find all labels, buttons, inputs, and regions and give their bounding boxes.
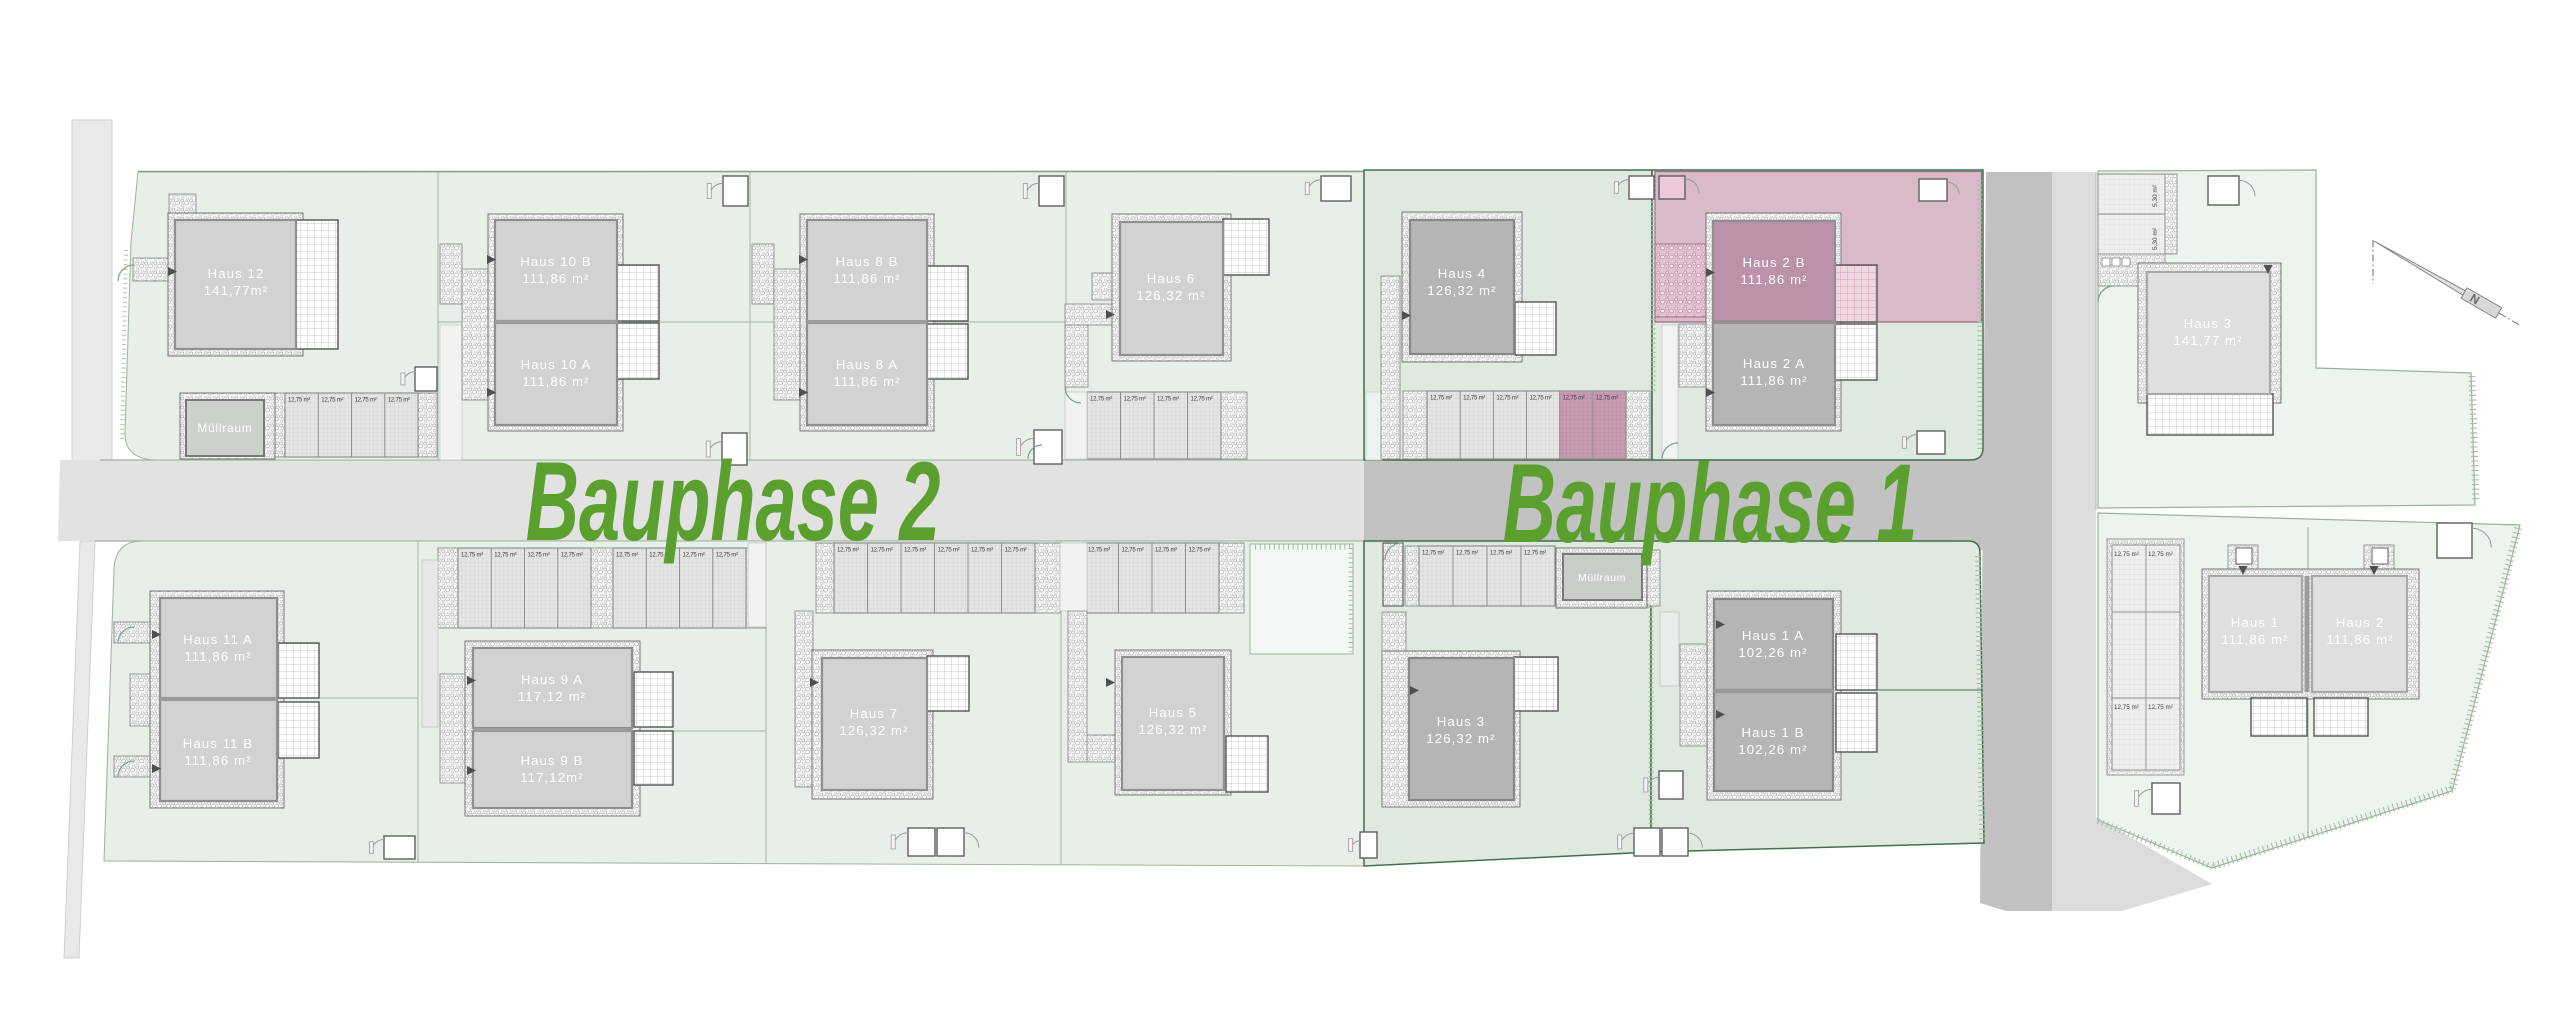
- svg-text:Bauphase 1: Bauphase 1: [1503, 442, 1918, 567]
- svg-text:Haus 2 B111,86 m²: Haus 2 B111,86 m²: [1740, 255, 1807, 287]
- svg-text:12,75 m²: 12,75 m²: [1496, 396, 1518, 402]
- svg-text:Haus 9 A117,12 m²: Haus 9 A117,12 m²: [518, 672, 586, 704]
- svg-text:12,75 m²: 12,75 m²: [938, 548, 960, 554]
- svg-text:Müllraum: Müllraum: [198, 421, 253, 435]
- svg-text:Haus 1 A102,26 m²: Haus 1 A102,26 m²: [1738, 628, 1807, 660]
- svg-text:12,75 m²: 12,75 m²: [1122, 548, 1144, 554]
- svg-text:Haus 8 B111,86 m²: Haus 8 B111,86 m²: [833, 254, 900, 286]
- svg-text:Haus 1111,86 m²: Haus 1111,86 m²: [2221, 615, 2288, 647]
- svg-text:12,75 m²: 12,75 m²: [1155, 548, 1177, 554]
- svg-text:Haus 2 A111,86 m²: Haus 2 A111,86 m²: [1740, 356, 1807, 388]
- svg-text:12,75 m²: 12,75 m²: [1191, 397, 1213, 403]
- svg-text:Müllraum: Müllraum: [1578, 572, 1626, 584]
- svg-text:12,75 m²: 12,75 m²: [2114, 704, 2139, 711]
- svg-text:Haus 12141,77m²: Haus 12141,77m²: [204, 266, 269, 298]
- svg-text:12,75 m²: 12,75 m²: [1530, 396, 1552, 402]
- svg-text:5,30 m²: 5,30 m²: [2152, 184, 2159, 207]
- svg-text:12,75 m²: 12,75 m²: [1456, 551, 1478, 557]
- svg-text:Haus 9 B117,12m²: Haus 9 B117,12m²: [520, 753, 584, 785]
- svg-text:5,30 m²: 5,30 m²: [2152, 227, 2159, 250]
- svg-text:12,75 m²: 12,75 m²: [2148, 704, 2173, 711]
- svg-text:Haus 10 B111,86 m²: Haus 10 B111,86 m²: [520, 254, 591, 286]
- svg-text:12,75 m²: 12,75 m²: [1157, 397, 1179, 403]
- svg-text:12,75 m²: 12,75 m²: [321, 398, 343, 404]
- svg-text:12,75 m²: 12,75 m²: [1005, 548, 1027, 554]
- svg-text:12,75 m²: 12,75 m²: [1563, 396, 1585, 402]
- svg-text:12,75 m²: 12,75 m²: [494, 553, 516, 559]
- svg-text:12,75 m²: 12,75 m²: [461, 553, 483, 559]
- svg-text:12,75 m²: 12,75 m²: [1596, 396, 1618, 402]
- svg-text:Haus 8 A111,86 m²: Haus 8 A111,86 m²: [833, 357, 900, 389]
- svg-text:12,75 m²: 12,75 m²: [1430, 396, 1452, 402]
- svg-text:12,75 m²: 12,75 m²: [2114, 551, 2139, 558]
- svg-text:Haus 11 A111,86 m²: Haus 11 A111,86 m²: [183, 632, 253, 664]
- svg-text:12,75 m²: 12,75 m²: [1463, 396, 1485, 402]
- svg-text:12,75 m²: 12,75 m²: [1124, 397, 1146, 403]
- svg-text:Haus 10 A111,86 m²: Haus 10 A111,86 m²: [521, 357, 592, 389]
- svg-text:12,75 m²: 12,75 m²: [355, 398, 377, 404]
- svg-text:Bauphase 2: Bauphase 2: [526, 440, 941, 565]
- svg-text:Haus 11 B111,86 m²: Haus 11 B111,86 m²: [183, 736, 254, 768]
- svg-text:12,75 m²: 12,75 m²: [1088, 548, 1110, 554]
- svg-text:12,75 m²: 12,75 m²: [1090, 397, 1112, 403]
- svg-text:12,75 m²: 12,75 m²: [288, 398, 310, 404]
- svg-text:12,75 m²: 12,75 m²: [1422, 551, 1444, 557]
- svg-text:Haus 1 B102,26 m²: Haus 1 B102,26 m²: [1738, 725, 1807, 757]
- svg-text:12,75 m²: 12,75 m²: [388, 398, 410, 404]
- svg-text:12,75 m²: 12,75 m²: [2148, 551, 2173, 558]
- svg-text:Haus 2111,86 m²: Haus 2111,86 m²: [2326, 615, 2393, 647]
- svg-text:12,75 m²: 12,75 m²: [1189, 548, 1211, 554]
- svg-text:12,75 m²: 12,75 m²: [971, 548, 993, 554]
